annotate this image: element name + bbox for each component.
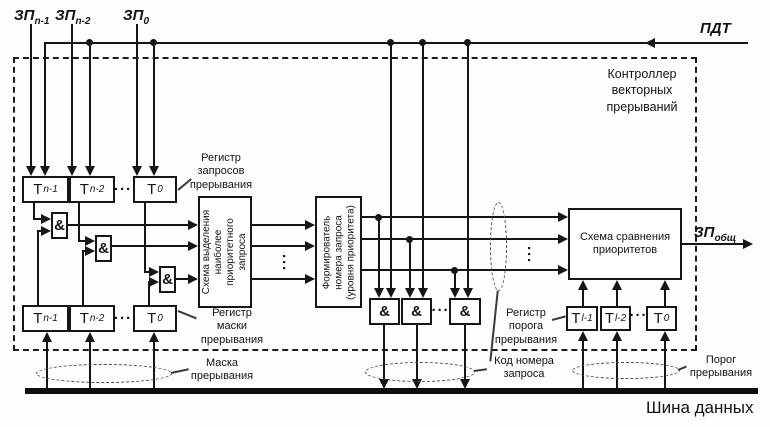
- data-bus: [25, 388, 758, 394]
- label-line: Регистр: [181, 152, 261, 165]
- code-group-label: Код номера запроса: [482, 355, 566, 382]
- and-gate: &: [401, 298, 432, 325]
- wire-selector-out: [252, 245, 305, 247]
- label-line: порога: [488, 320, 564, 333]
- request-number-former-text: Формирователь номера запроса (уровня при…: [315, 196, 362, 308]
- arrow-into-request-register: [67, 166, 77, 176]
- arrow-pdt-left: [645, 38, 655, 48]
- wire-reqbit-to-gate: [144, 203, 146, 273]
- wire-threshold-bit: [582, 289, 584, 306]
- cell-text: Т: [605, 310, 614, 327]
- wire-maskbit-to-gate: [37, 230, 39, 305]
- arrow-into-and-gate: [85, 246, 95, 256]
- block-line: наиболее: [213, 230, 225, 275]
- wire-bus-to-mask: [153, 342, 155, 388]
- arrow-into-and-gate: [450, 288, 460, 298]
- mask-register-cell: Т0: [133, 305, 177, 332]
- interrupt-controller-diagram: ЗПn-1 ЗПn-2 ЗП0 ПДТ: [0, 0, 770, 427]
- cell-text: Т: [80, 181, 89, 198]
- wire-code-tap: [409, 239, 411, 289]
- request-register-cell: Тn-1: [22, 176, 69, 203]
- wire-threshold-bit: [616, 289, 618, 306]
- and-gate-label: &: [379, 303, 390, 320]
- request-register-cell: Тn-2: [69, 176, 115, 203]
- arrow-into-comparator: [578, 280, 588, 290]
- signal-text: ЗП: [14, 7, 34, 24]
- arrow-into-mask-register: [149, 332, 159, 342]
- threshold-register-cell: Тl-2: [600, 306, 631, 331]
- label-line: Регистр: [194, 307, 270, 320]
- label-line: Порог: [682, 354, 760, 367]
- title-line: прерываний: [588, 99, 696, 115]
- signal-text: ЗП: [694, 224, 714, 241]
- label-line: маски: [194, 320, 270, 333]
- wire-threshold-bit: [664, 289, 666, 306]
- block-line: приоритетов: [580, 244, 670, 257]
- arrow-zp-common: [743, 239, 753, 249]
- cell-text: Т: [654, 310, 663, 327]
- ellipsis-vertical: ···: [276, 249, 290, 277]
- wire-zp-0: [136, 24, 138, 168]
- label-line: запросов: [181, 165, 261, 178]
- wire-zp-n2: [71, 24, 73, 168]
- and-gate-label: &: [54, 217, 65, 234]
- wire-reqbit-to-gate: [78, 203, 80, 242]
- threshold-register-cell: Т0: [646, 306, 677, 331]
- wire-code-bit: [361, 216, 558, 218]
- mask-register-label: Регистр маски прерывания: [194, 307, 270, 347]
- arrow-into-and-gate: [405, 288, 415, 298]
- threshold-group-ellipse: [572, 362, 680, 379]
- wire-pdt-branch: [153, 43, 155, 168]
- arrow-into-comparator: [558, 212, 568, 222]
- and-gate-label: &: [460, 303, 471, 320]
- arrow-into-request-register: [26, 166, 36, 176]
- controller-title: Контроллер векторных прерываний: [588, 66, 696, 115]
- wire-pdt-strobe: [467, 43, 469, 289]
- label-line: прерывания: [181, 179, 261, 192]
- priority-comparator-text: Схема сравнения приоритетов: [580, 231, 670, 258]
- mask-group-label: Маска прерывания: [184, 357, 260, 384]
- arrow-into-and-gate: [41, 214, 51, 224]
- label-line: запроса: [482, 368, 566, 381]
- signal-text: ЗП: [55, 7, 75, 24]
- block-line: номера запроса: [333, 215, 345, 290]
- cell-text: Т: [571, 310, 580, 327]
- cell-text: Т: [147, 181, 156, 198]
- code-bus-ellipse: [490, 202, 507, 291]
- label-line: Регистр: [488, 307, 564, 320]
- mask-register-cell: Тn-1: [22, 305, 69, 332]
- arrow-into-selector: [188, 220, 198, 230]
- arrow-into-and-gate: [149, 267, 159, 277]
- and-gate-label: &: [98, 240, 109, 257]
- signal-label-zp-n2: ЗПn-2: [55, 7, 90, 24]
- block-line: Схема сравнения: [580, 231, 670, 244]
- arrow-into-comparator: [612, 280, 622, 290]
- block-line: приоритетного: [225, 218, 237, 286]
- arrow-into-comparator: [660, 280, 670, 290]
- wire-selector-out: [252, 224, 305, 226]
- arrow-into-and-gate: [418, 288, 428, 298]
- cell-text: Т: [33, 310, 42, 327]
- arrow-into-request-register: [132, 166, 142, 176]
- and-gate-label: &: [411, 303, 422, 320]
- priority-selector-text: Схема выделения наиболее приоритетного з…: [198, 196, 252, 308]
- signal-subscript: n-2: [75, 16, 90, 27]
- arrow-into-request-register: [149, 166, 159, 176]
- wire-zp-n1: [30, 24, 32, 168]
- arrow-into-request-register: [85, 166, 95, 176]
- wire-code-tap: [378, 217, 380, 289]
- block-line: Формирователь: [321, 215, 333, 289]
- arrow-into-former: [305, 241, 315, 251]
- arrow-into-threshold-register: [660, 331, 670, 341]
- wire-pdt-branch: [44, 42, 46, 168]
- arrow-into-and-gate: [463, 288, 473, 298]
- cell-text: Т: [33, 181, 42, 198]
- signal-label-zp-common: ЗПобщ: [694, 224, 736, 241]
- arrow-into-and-gate: [386, 288, 396, 298]
- wire-gate-out: [68, 224, 190, 226]
- signal-label-zp-0: ЗП0: [123, 7, 149, 24]
- wire-code-bit: [361, 238, 558, 240]
- threshold-register-cell: Тl-1: [566, 306, 598, 331]
- label-line: прерывания: [488, 334, 564, 347]
- ellipsis: ···: [630, 309, 647, 323]
- block-line: запроса: [237, 233, 249, 270]
- wire-pdt-strobe: [390, 43, 392, 289]
- and-gate: &: [51, 212, 68, 239]
- arrow-into-and-gate: [41, 226, 51, 236]
- priority-comparator-block: Схема сравнения приоритетов: [568, 208, 682, 280]
- cell-text: Т: [147, 310, 156, 327]
- signal-subscript: 0: [143, 16, 149, 27]
- signal-label-pdt: ПДТ: [700, 20, 731, 37]
- wire-pdt-branch: [89, 43, 91, 168]
- mask-register-cell: Тn-2: [69, 305, 115, 332]
- wire-code-tap: [454, 270, 456, 289]
- label-line: прерывания: [194, 334, 270, 347]
- label-line: Маска: [184, 357, 260, 370]
- arrow-into-and-gate: [374, 288, 384, 298]
- ellipsis: ···: [112, 183, 134, 197]
- wire-code-bit: [361, 269, 558, 271]
- arrow-into-and-gate: [85, 236, 95, 246]
- arrow-into-selector: [188, 241, 198, 251]
- arrow-into-mask-register: [85, 332, 95, 342]
- ellipsis: ···: [112, 312, 134, 326]
- request-register-label: Регистр запросов прерывания: [181, 152, 261, 192]
- arrow-into-request-register: [40, 166, 50, 176]
- arrow-into-threshold-register: [578, 331, 588, 341]
- wire-gate-out: [112, 245, 190, 247]
- signal-label-zp-n1: ЗПn-1: [14, 7, 49, 24]
- signal-text: ЗП: [123, 7, 143, 24]
- wire-bus-to-mask: [46, 342, 48, 388]
- ellipsis-vertical: ···: [521, 241, 535, 269]
- and-gate: &: [369, 298, 400, 325]
- signal-subscript: n-1: [34, 16, 49, 27]
- mask-group-ellipse: [36, 364, 172, 383]
- label-line: прерывания: [682, 367, 760, 380]
- and-gate-label: &: [162, 271, 173, 288]
- wire-pdt-strobe: [422, 43, 424, 289]
- label-line: Шина данных: [646, 398, 754, 419]
- signal-text: ПДТ: [700, 20, 731, 37]
- block-line: Схема выделения: [201, 210, 213, 294]
- title-line: Контроллер: [588, 66, 696, 82]
- arrow-into-comparator: [558, 234, 568, 244]
- label-line: прерывания: [184, 370, 260, 383]
- arrow-into-selector: [188, 274, 198, 284]
- signal-subscript: общ: [714, 233, 736, 244]
- arrow-into-former: [305, 274, 315, 284]
- label-line: Код номера: [482, 355, 566, 368]
- code-group-ellipse: [365, 362, 475, 382]
- cell-text: Т: [80, 310, 89, 327]
- arrow-into-comparator: [558, 265, 568, 275]
- ellipsis: ···: [432, 304, 449, 318]
- and-gate: &: [95, 235, 112, 262]
- data-bus-label: Шина данных: [646, 398, 754, 419]
- and-gate: &: [159, 266, 176, 293]
- threshold-group-label: Порог прерывания: [682, 354, 760, 381]
- wire-selector-out: [252, 278, 305, 280]
- arrow-into-mask-register: [42, 332, 52, 342]
- arrow-into-former: [305, 220, 315, 230]
- title-line: векторных: [588, 82, 696, 98]
- request-register-cell: Т0: [133, 176, 177, 203]
- threshold-register-label: Регистр порога прерывания: [488, 307, 564, 347]
- and-gate: &: [449, 298, 481, 325]
- arrow-into-and-gate: [149, 277, 159, 287]
- wire-maskbit-to-gate: [82, 250, 84, 305]
- block-line: (уровня приоритета): [345, 205, 357, 300]
- arrow-into-threshold-register: [612, 331, 622, 341]
